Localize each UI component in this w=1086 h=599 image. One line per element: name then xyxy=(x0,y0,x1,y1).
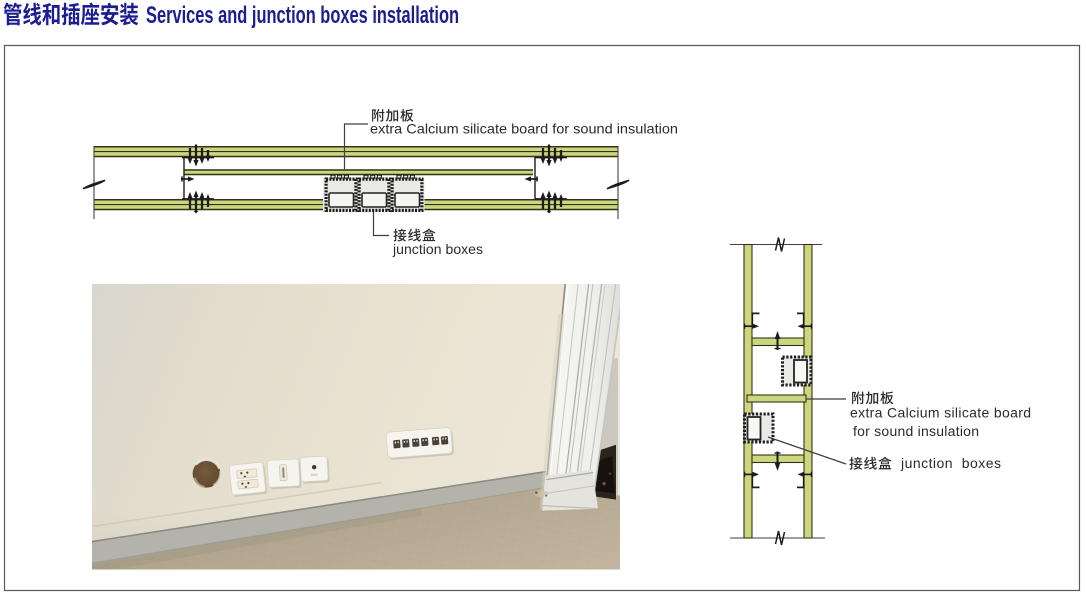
svg-text:extra Calcium silicate board: extra Calcium silicate board xyxy=(850,405,1031,421)
svg-text:for sound insulation: for sound insulation xyxy=(853,423,979,439)
svg-text:extra Calcium silicate board f: extra Calcium silicate board for sound i… xyxy=(370,121,678,137)
svg-text:junction boxes: junction boxes xyxy=(900,455,1001,471)
svg-text:junction boxes: junction boxes xyxy=(392,241,483,257)
svg-text:Services and junction boxes in: Services and junction boxes installation xyxy=(146,2,459,29)
